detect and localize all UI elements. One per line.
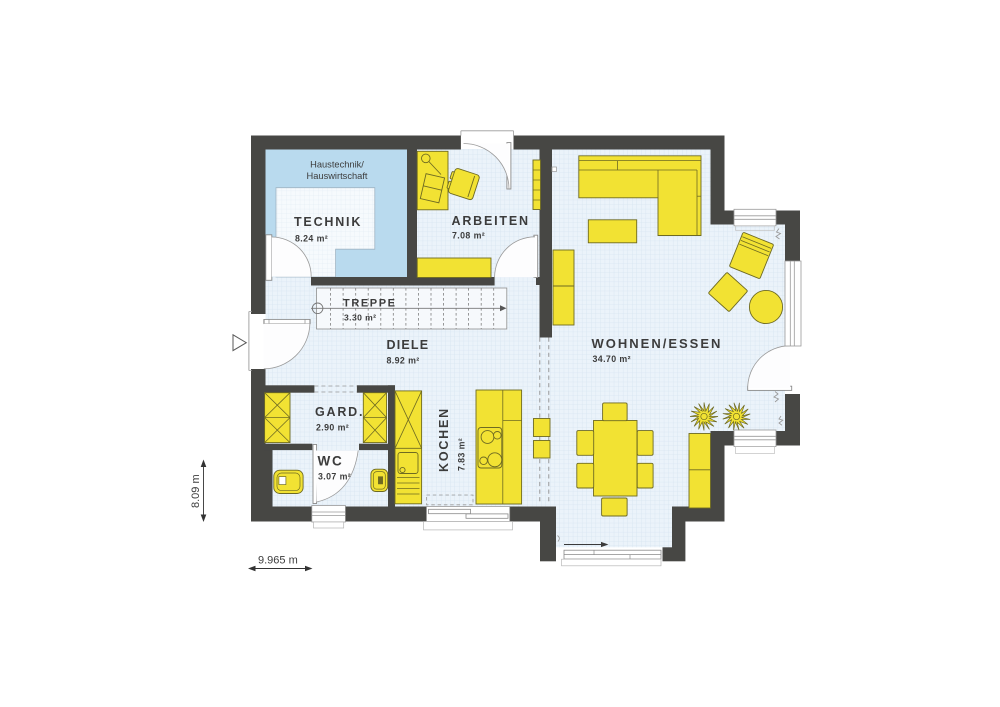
svg-text:WOHNEN/ESSEN: WOHNEN/ESSEN (592, 336, 723, 351)
svg-text:KOCHEN: KOCHEN (437, 407, 451, 472)
svg-text:TREPPE: TREPPE (343, 298, 397, 310)
svg-text:2.90 m²: 2.90 m² (316, 423, 349, 433)
svg-text:DIELE: DIELE (387, 338, 430, 352)
svg-text:3.30 m²: 3.30 m² (344, 313, 376, 323)
svg-text:Hauswirtschaft: Hauswirtschaft (307, 171, 368, 181)
svg-text:GARD.: GARD. (315, 405, 364, 419)
svg-text:Haustechnik/: Haustechnik/ (310, 160, 364, 170)
svg-text:8.09 m: 8.09 m (190, 474, 202, 508)
svg-text:WC: WC (318, 454, 344, 469)
svg-text:3.07 m²: 3.07 m² (318, 472, 351, 482)
svg-text:7.83 m²: 7.83 m² (457, 438, 467, 471)
svg-text:7.08 m²: 7.08 m² (452, 231, 485, 241)
svg-text:TECHNIK: TECHNIK (294, 215, 362, 229)
svg-text:8.92 m²: 8.92 m² (387, 356, 420, 366)
svg-text:9.965 m: 9.965 m (258, 555, 298, 567)
svg-text:34.70 m²: 34.70 m² (593, 354, 631, 364)
svg-text:8.24 m²: 8.24 m² (295, 234, 328, 244)
svg-text:ARBEITEN: ARBEITEN (452, 214, 530, 228)
